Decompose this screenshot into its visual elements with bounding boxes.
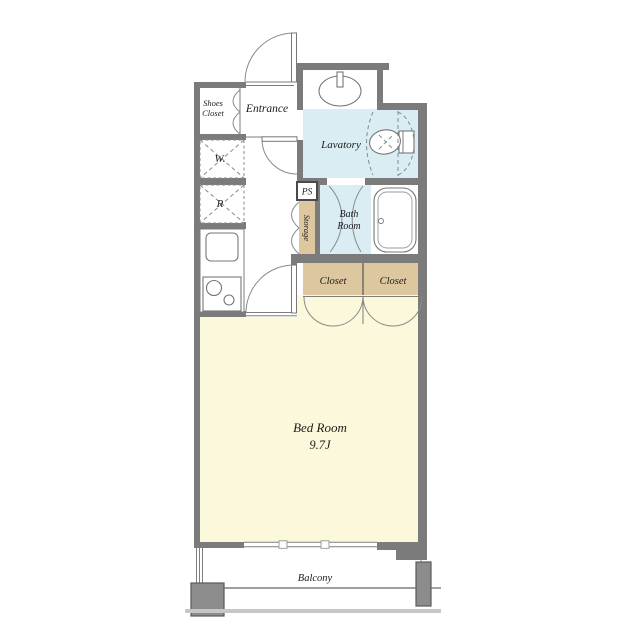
refrigerator-label: R	[216, 198, 224, 210]
lavatory-label: Lavatory	[320, 139, 361, 151]
washer-label: W.	[215, 153, 226, 165]
window-mullion-left	[279, 541, 287, 549]
window	[244, 541, 377, 549]
floor-plan: Shoes Closet Entrance Lavatory Bath Room…	[0, 0, 640, 640]
closet-left-label: Closet	[320, 276, 348, 287]
kitchen	[200, 229, 244, 312]
bedroom-door	[246, 265, 297, 313]
wall-lav-bath-b	[365, 178, 427, 185]
wall-entrance-lavatory-a	[297, 63, 303, 110]
storage-label: Storage	[302, 215, 312, 242]
storage-door	[292, 202, 300, 254]
wall-entrance-lavatory-b	[297, 140, 303, 182]
wall-bottom-right	[377, 542, 426, 550]
bedroom-label: Bed Room	[293, 420, 347, 435]
wall-kitchen-div1	[194, 134, 246, 140]
hall-door-leaf	[262, 137, 297, 142]
entrance-door	[245, 33, 297, 82]
bathtub-drain	[379, 219, 384, 224]
toilet-tank	[399, 131, 414, 153]
shoes-closet-label-1: Shoes	[203, 98, 224, 108]
shoes-closet-label-2: Closet	[202, 108, 224, 118]
bedroom-door-leaf	[292, 265, 297, 313]
entrance-door-leaf	[292, 33, 297, 82]
wall-kitchen-div2	[194, 178, 246, 185]
bathroom-label-2: Room	[336, 221, 360, 232]
balcony-edge-line	[185, 609, 441, 613]
closet-right-label: Closet	[380, 276, 408, 287]
stove-burner-large	[207, 281, 222, 296]
ps-label: PS	[301, 188, 313, 198]
bathroom-label-1: Bath	[340, 209, 359, 220]
drain-pipes	[197, 546, 203, 583]
wall-top-shoes	[194, 82, 246, 88]
wall-lavatory-top	[297, 63, 389, 70]
shoes-closet-door	[233, 88, 240, 135]
window-mullion-right	[321, 541, 329, 549]
bedroom-size-label: 9.7J	[309, 438, 332, 452]
balcony-label: Balcony	[298, 573, 333, 584]
hall-door	[262, 137, 297, 174]
floor-plan-svg: Shoes Closet Entrance Lavatory Bath Room…	[0, 0, 640, 640]
basin-tap	[337, 72, 343, 87]
entrance-label: Entrance	[245, 103, 288, 115]
thresholds	[240, 82, 297, 316]
pillar-right	[416, 562, 431, 606]
wall-above-closet	[291, 254, 427, 263]
wall-vanity-right	[377, 63, 383, 109]
kitchen-sink	[206, 233, 238, 261]
wall-right	[418, 103, 427, 560]
wall-bottom-left	[194, 542, 244, 548]
stove-burner-small	[224, 295, 234, 305]
